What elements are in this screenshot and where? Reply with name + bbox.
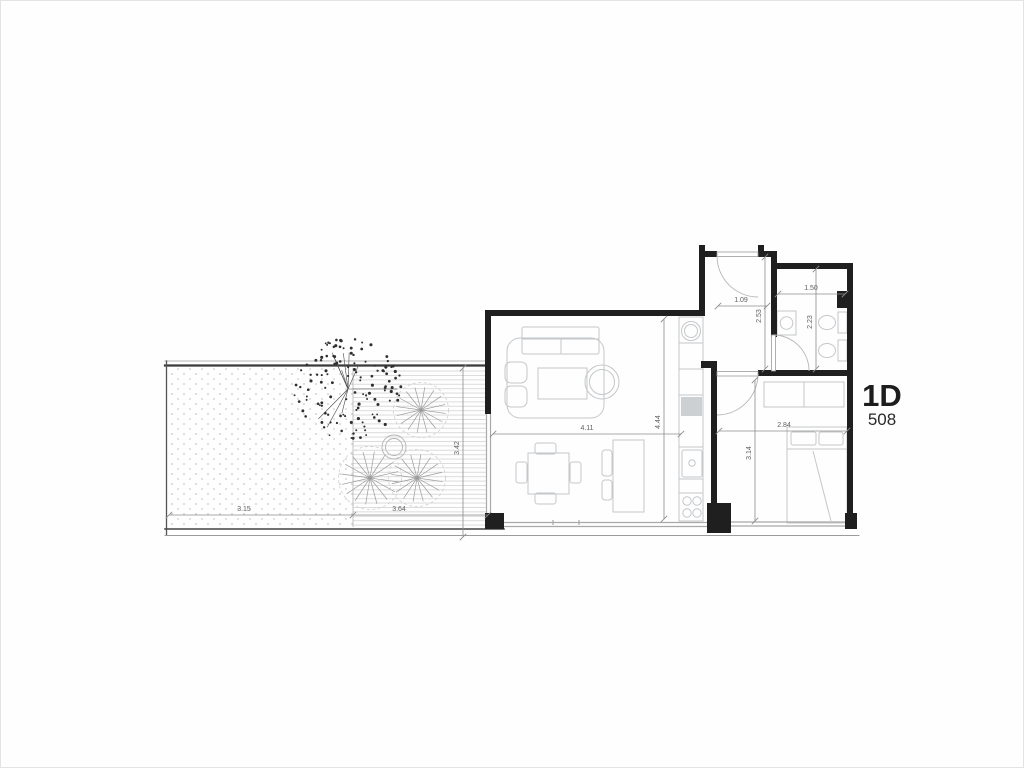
dimension-label: 1.09 [734,297,748,304]
floor-plan-drawing: 3.15 3.64 3.42 4.11 4.44 1.09 2.53 1.50 [1,1,1024,768]
wall [847,269,853,521]
dining-furniture [516,440,644,512]
entry-door-icon [717,252,758,297]
dimension-bedroom-depth: 3.14 [746,377,758,524]
sideboard [613,440,644,512]
walls [485,245,857,533]
bedroom-door-icon [717,372,758,416]
dimension-hall-depth: 2.53 [756,254,768,372]
sofa [522,327,599,354]
wall [485,310,491,414]
washbasin-icon [777,311,796,335]
stool [602,480,612,500]
dimension-label: 2.23 [807,315,814,329]
dimension-label: 2.53 [756,309,763,323]
dimension-hall-width: 1.09 [715,297,770,309]
dimension-living-depth: 4.44 [655,316,667,522]
dimension-label: 2.84 [777,422,791,429]
deck-boards [353,368,487,527]
pillow [791,432,816,445]
unit-number: 508 [868,410,896,429]
wall-pier [707,503,731,533]
sink-icon [682,322,701,341]
terrace-area [167,368,353,527]
dimension-label: 4.11 [580,425,593,432]
wardrobe [764,382,844,407]
oven-icon [682,450,702,477]
doors [717,252,809,415]
stool [602,450,612,476]
dimension-label: 3.15 [237,506,251,513]
unit-label: 1D 508 [862,378,902,429]
fridge-icon [681,397,702,416]
dining-chair [535,493,556,504]
bidet-icon [819,340,848,361]
unit-name: 1D [862,378,902,413]
dining-table [528,453,569,494]
wall [758,245,764,257]
dining-chair [516,462,527,483]
deck-area [353,368,487,527]
bedroom-furniture [764,382,847,523]
dimension-label: 3.42 [454,441,461,455]
dimension-label: 3.14 [746,446,753,460]
bed [787,427,847,523]
wall [485,310,705,316]
dimension-label: 3.64 [392,506,406,513]
armchair [505,386,527,407]
cooktop-icon [683,497,701,517]
dimension-label: 4.44 [655,415,662,429]
wall [771,370,853,376]
wall [771,257,777,337]
wall [705,251,717,257]
dining-chair [570,462,581,483]
floor-plan-canvas: 3.15 3.64 3.42 4.11 4.44 1.09 2.53 1.50 [0,0,1024,768]
coffee-table [538,368,587,399]
kitchen-counter [679,317,703,521]
bathroom-door-icon [772,335,810,371]
living-room-furniture [505,327,619,418]
dimension-bathroom-depth: 2.23 [807,266,819,372]
wall [699,245,705,316]
dining-chair [535,443,556,454]
toilet-icon [819,312,848,333]
wall [771,263,853,269]
pillow [819,432,843,445]
terrace-paving [167,368,353,527]
armchair [505,362,527,383]
round-side-table [585,365,619,399]
wall [711,361,717,503]
